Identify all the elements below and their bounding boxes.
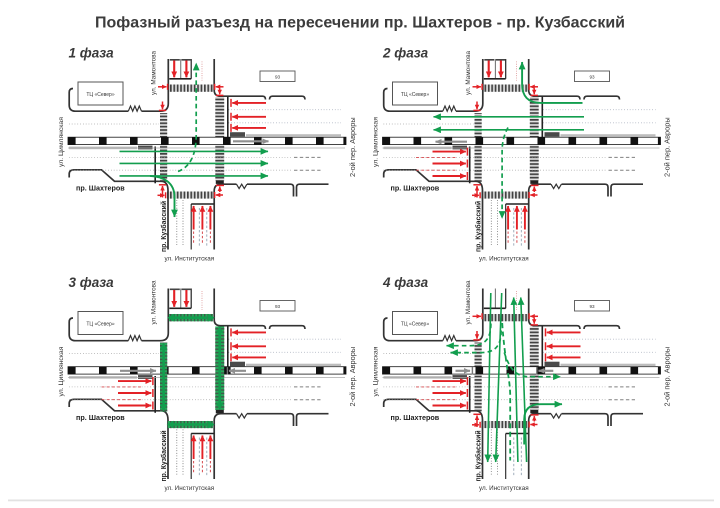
svg-text:Пофазный разъезд на пересечени: Пофазный разъезд на пересечении пр. Шахт… [95, 15, 625, 32]
svg-text:2 фаза: 2 фаза [382, 46, 429, 61]
svg-text:3 фаза: 3 фаза [69, 275, 115, 290]
svg-text:1 фаза: 1 фаза [69, 46, 115, 61]
svg-text:4 фаза: 4 фаза [382, 275, 429, 290]
